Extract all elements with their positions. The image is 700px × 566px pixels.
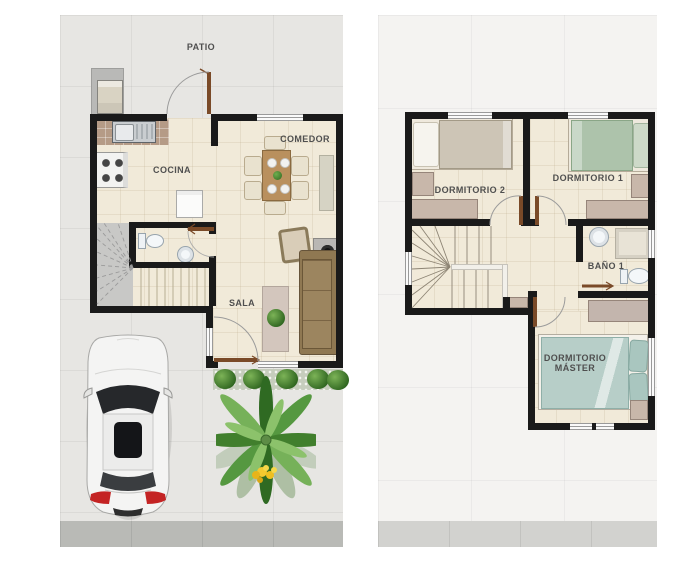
dining-chair [244, 156, 262, 176]
plate [267, 184, 277, 194]
bathroom-sink [177, 246, 194, 263]
window [257, 114, 303, 121]
wall [503, 297, 510, 315]
car-sunroof [114, 422, 142, 458]
hedge-bush [327, 370, 349, 390]
wall [528, 297, 535, 430]
wall [578, 291, 655, 298]
blanket [439, 120, 512, 169]
wall [129, 222, 136, 268]
palm-trunk [261, 435, 271, 445]
stairs-landing [92, 223, 133, 310]
patio-label: PATIO [187, 42, 215, 52]
window [448, 112, 492, 119]
dining-chair [291, 181, 309, 200]
dining-chair [244, 181, 262, 200]
floor-plan-image: PATIO COCINA COMEDOR SALA [0, 0, 700, 566]
window [570, 423, 592, 430]
ground-floor-plan: PATIO COCINA COMEDOR SALA [60, 15, 343, 547]
dormitorio-2-label: DORMITORIO 2 [435, 185, 506, 195]
window [568, 112, 608, 119]
dining-chair [291, 156, 309, 176]
dining-chair [264, 201, 286, 215]
pillow [628, 373, 649, 404]
sofa-cushions [302, 259, 332, 349]
dormitorio-1-label: DORMITORIO 1 [553, 173, 624, 183]
stair-railing [451, 264, 508, 270]
plate [267, 158, 277, 168]
window [405, 252, 412, 285]
table-plant [273, 171, 282, 180]
wall [209, 222, 216, 234]
upper-floor-plan: DORMITORIO 2 DORMITORIO 1 BAÑO 1 DORMITO… [378, 15, 657, 547]
bathroom-sink [589, 227, 609, 247]
wall [648, 258, 655, 338]
wall [206, 361, 218, 368]
sidewalk [60, 521, 343, 547]
window [648, 338, 655, 396]
palm-tree [216, 376, 316, 512]
wall [129, 262, 216, 268]
cocina-label: COCINA [153, 165, 191, 175]
wall [492, 112, 568, 119]
bano-1-label: BAÑO 1 [588, 261, 624, 271]
nightstand [412, 172, 434, 196]
toilet [146, 234, 164, 248]
wall [90, 114, 97, 313]
window [596, 423, 614, 430]
pillow [413, 122, 439, 167]
dormitorio-master-line2: MÁSTER [544, 363, 606, 373]
sala-label: SALA [229, 298, 255, 308]
bed-dormitorio-1 [568, 117, 652, 172]
sink-drainboard [136, 124, 153, 139]
car [83, 330, 173, 522]
sideboard [319, 155, 334, 211]
wall [568, 219, 655, 226]
toilet-tank [138, 233, 146, 249]
wall [523, 112, 530, 219]
sidewalk [378, 521, 657, 547]
comedor-label: COMEDOR [280, 134, 330, 144]
sink-basin [115, 124, 134, 141]
wall [336, 114, 343, 368]
master-dresser [588, 300, 652, 322]
pillow [628, 339, 649, 372]
wall [211, 114, 218, 146]
wall [405, 112, 412, 252]
wall [90, 306, 213, 313]
stove [96, 152, 128, 188]
wall [576, 226, 583, 262]
wall [209, 256, 216, 268]
window [206, 328, 213, 356]
window [648, 230, 655, 258]
dining-table [262, 150, 291, 201]
plate [280, 184, 290, 194]
wall [405, 308, 535, 315]
sofa [299, 250, 341, 355]
wall [298, 361, 343, 368]
bed-dormitorio-2 [409, 117, 513, 170]
nightstand [630, 400, 648, 420]
wall [614, 423, 655, 430]
plant [267, 309, 285, 327]
wall [129, 222, 216, 228]
kitchen-sink [112, 121, 156, 143]
blanket [541, 337, 629, 409]
plate [280, 158, 290, 168]
wall [528, 423, 570, 430]
wall [648, 112, 655, 230]
wall [521, 219, 539, 226]
wall [90, 114, 167, 121]
refrigerator [176, 190, 203, 218]
dormitorio-master-label: DORMITORIO MÁSTER [544, 353, 606, 373]
shower [615, 228, 650, 259]
blanket [571, 120, 633, 171]
wall [209, 268, 216, 306]
dormitorio-master-line1: DORMITORIO [544, 353, 606, 363]
hall-closet [507, 297, 528, 308]
wall [206, 306, 213, 328]
window [258, 361, 298, 368]
laundry-sink [97, 80, 123, 114]
wall [405, 219, 490, 226]
dresser [586, 200, 650, 219]
toilet [628, 268, 650, 284]
toilet-tank [620, 269, 628, 284]
dresser [410, 199, 478, 219]
